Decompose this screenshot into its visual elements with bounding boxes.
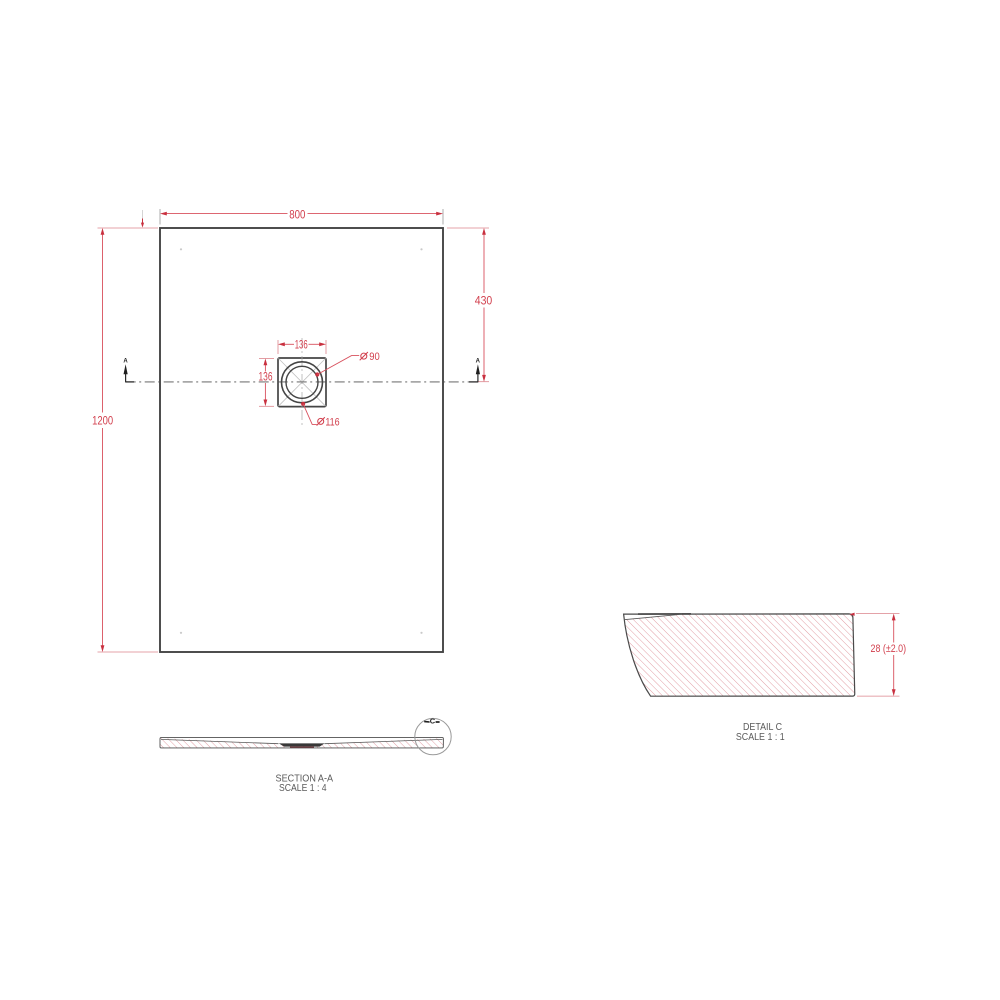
svg-text:1200: 1200 [92,413,113,427]
svg-text:116: 116 [325,417,339,429]
svg-text:SCALE 1 : 1: SCALE 1 : 1 [736,731,785,743]
svg-text:28 (±2.0): 28 (±2.0) [871,643,907,655]
svg-text:A: A [476,358,481,364]
svg-text:C: C [430,716,436,725]
svg-text:136: 136 [259,369,273,383]
svg-text:90: 90 [369,351,380,363]
svg-text:136: 136 [295,338,308,352]
svg-text:430: 430 [475,293,493,307]
svg-text:A: A [123,358,128,364]
svg-text:SCALE 1 : 4: SCALE 1 : 4 [279,782,327,794]
svg-text:800: 800 [289,207,305,221]
